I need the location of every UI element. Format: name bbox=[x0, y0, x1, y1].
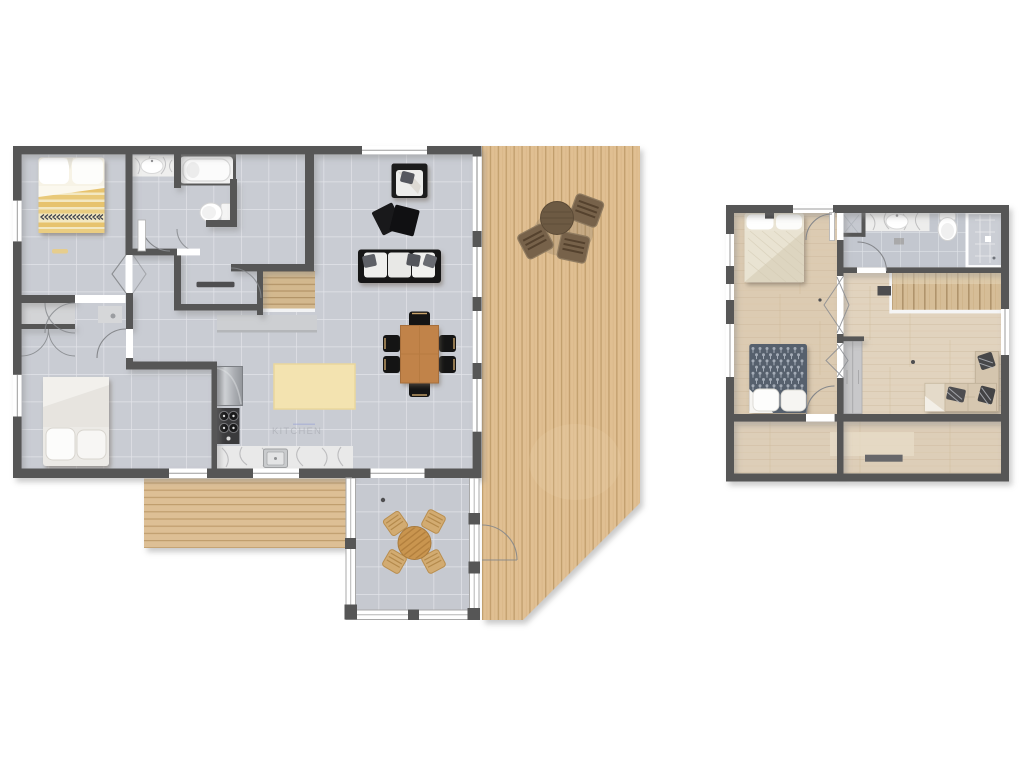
svg-text:KITCHEN: KITCHEN bbox=[272, 426, 322, 437]
